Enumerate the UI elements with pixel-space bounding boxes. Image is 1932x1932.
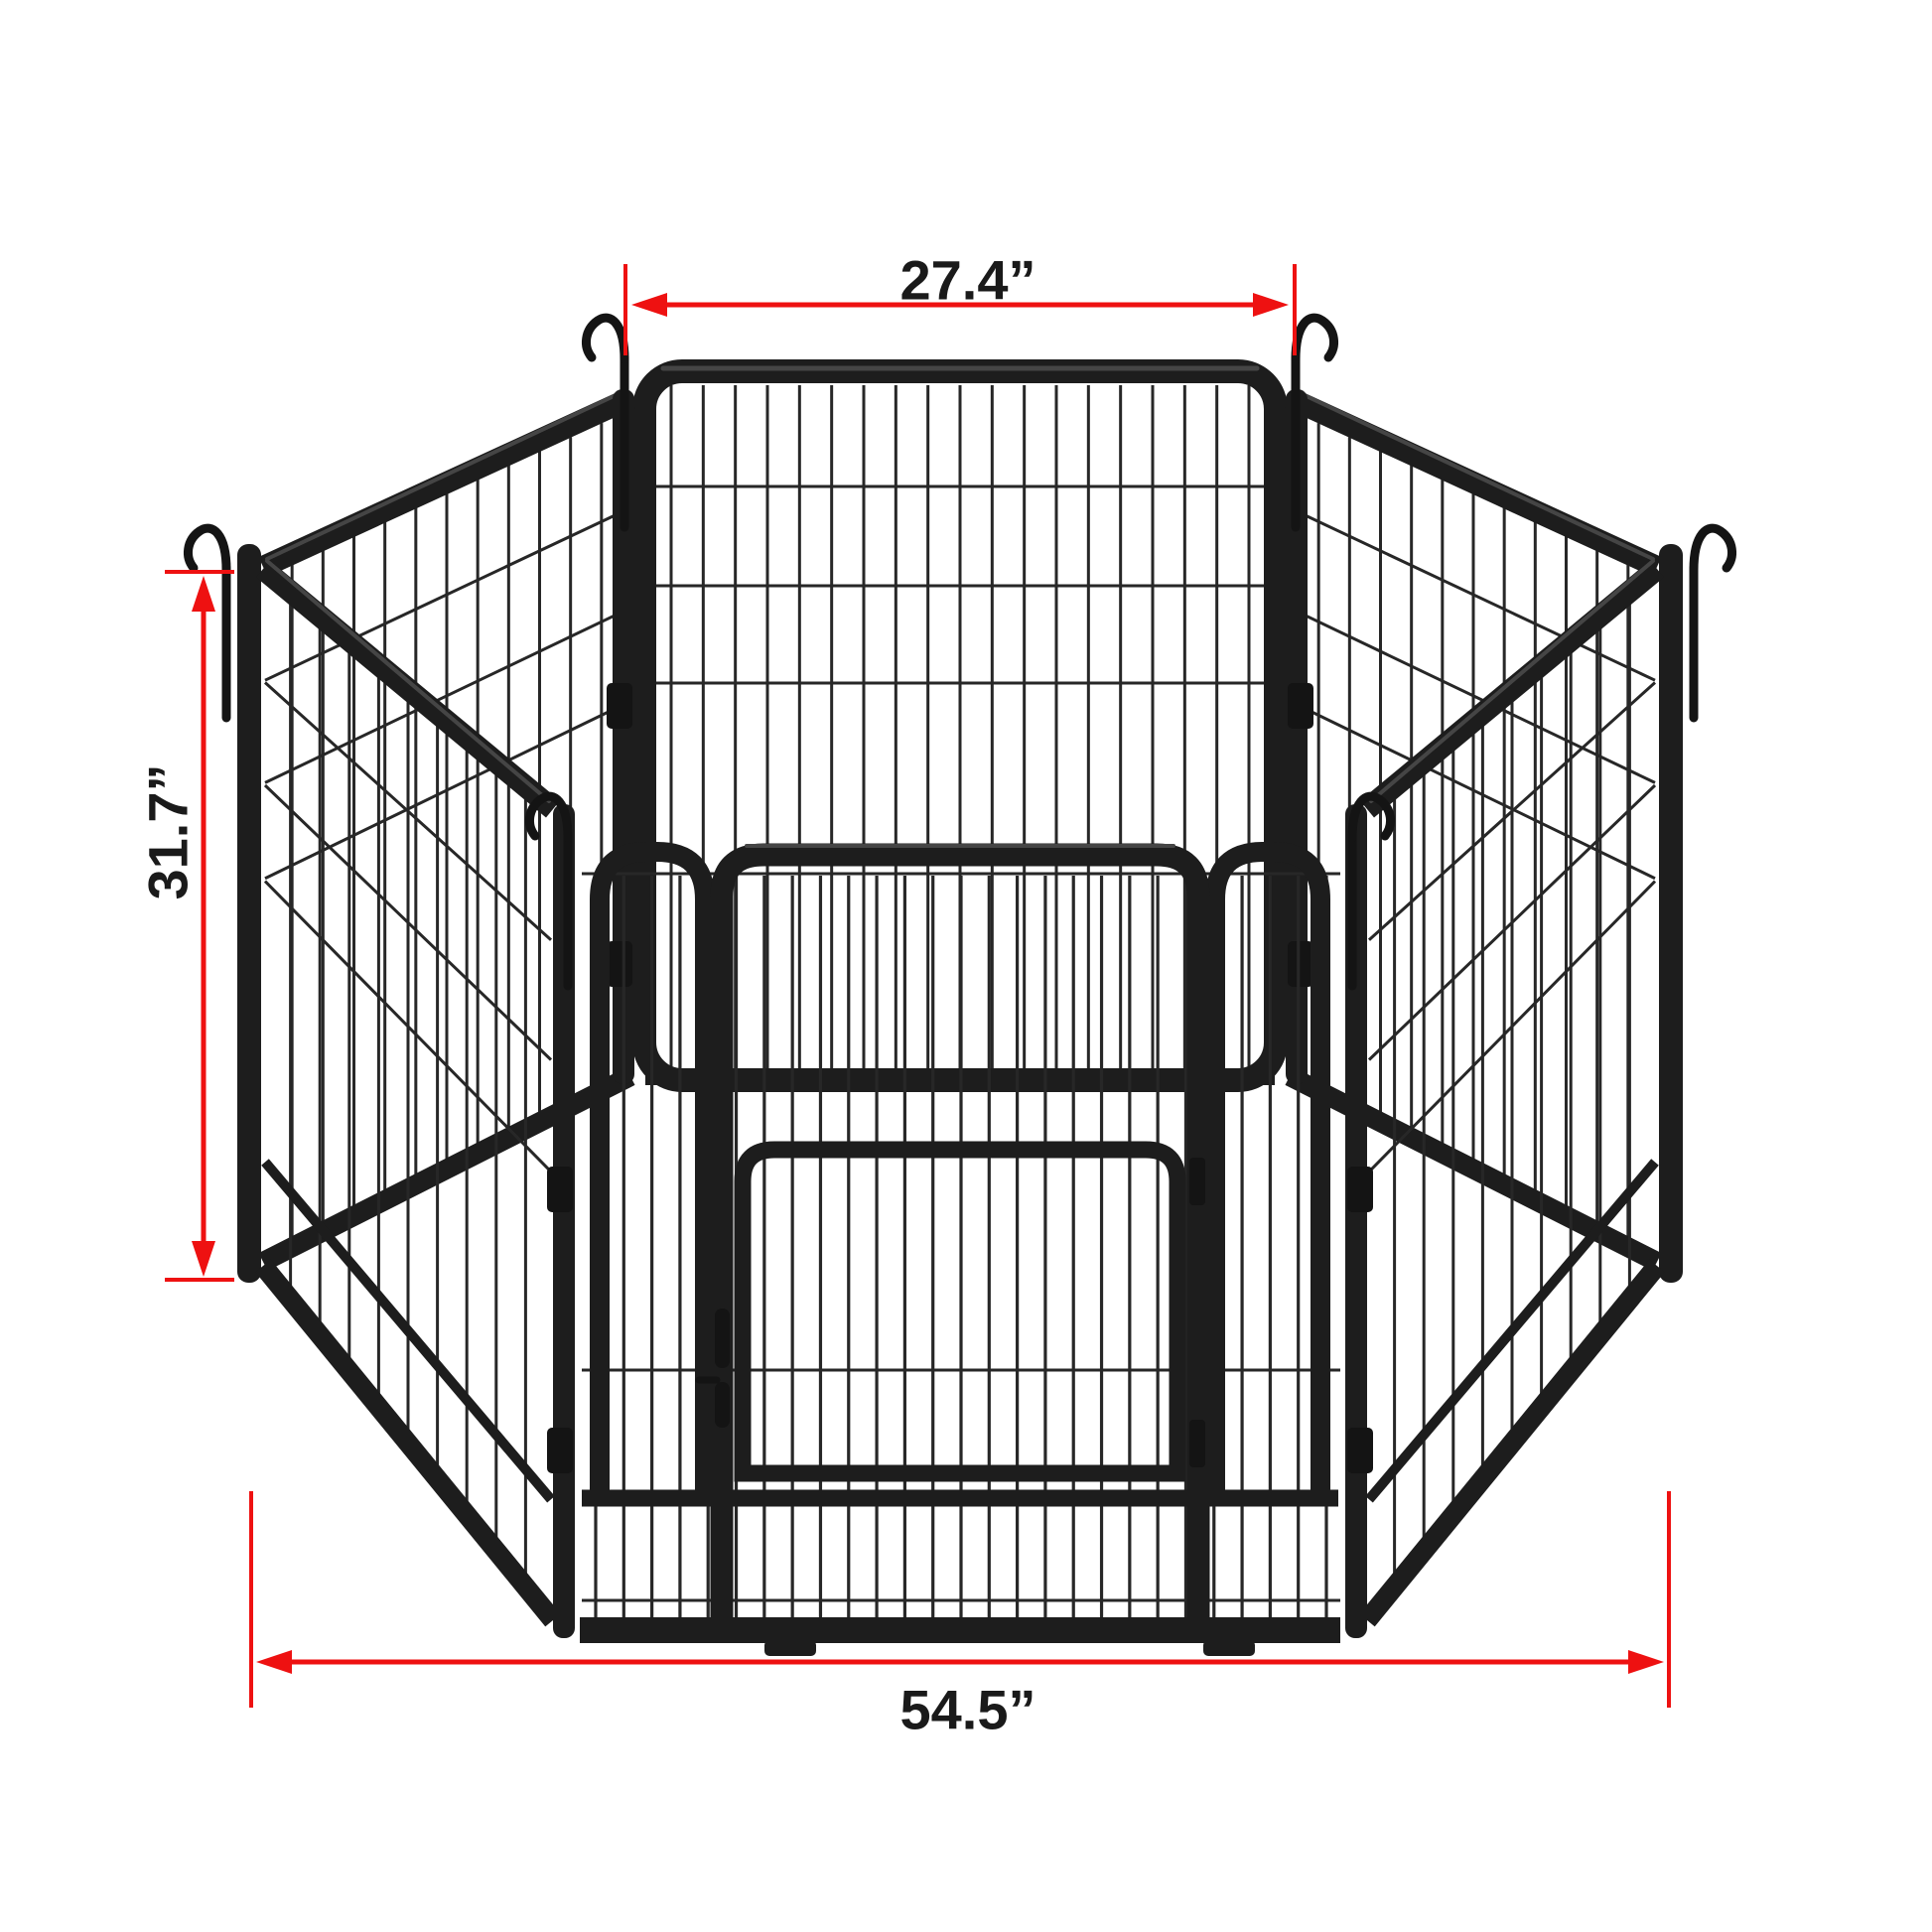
front-panel-layer (580, 852, 1340, 1656)
product-diagram: 27.4” 31.7” 54.5” (0, 0, 1932, 1932)
door-hinge-top (1189, 1158, 1205, 1205)
dimension-annotations: 27.4” 31.7” 54.5” (137, 249, 1036, 1741)
rear-left-panel (263, 390, 630, 1262)
left-corner-post (237, 544, 261, 1283)
total-width-label: 54.5” (900, 1679, 1036, 1741)
playpen-illustration: 27.4” 31.7” 54.5” (0, 0, 1932, 1932)
top-width-label: 27.4” (900, 249, 1036, 312)
panel-height-label: 31.7” (137, 764, 200, 900)
front-panel (580, 852, 1340, 1656)
right-corner-post (1659, 544, 1683, 1283)
door-hinge-bottom (1189, 1420, 1205, 1467)
left-corner-hook-icon (188, 528, 226, 718)
rear-right-panel (1290, 390, 1657, 1262)
right-corner-hook-icon (1694, 528, 1732, 718)
